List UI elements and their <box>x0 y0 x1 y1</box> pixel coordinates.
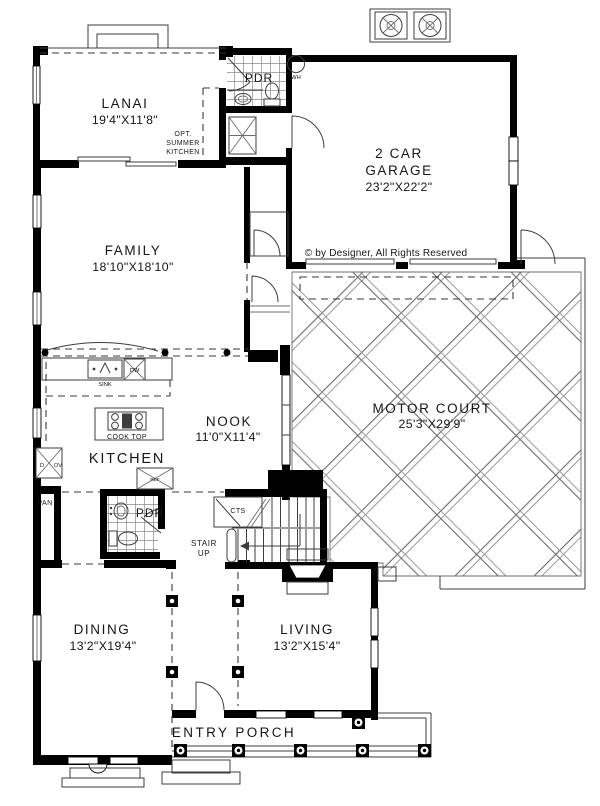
stair-break-line <box>247 499 270 527</box>
cooktop-icon <box>108 412 146 430</box>
family-window-2 <box>33 292 41 325</box>
labels: LANAI 19'4"X11'8" OPT. SUMMER KITCHEN PD… <box>37 71 491 740</box>
dining-dims: 13'2"X19'4" <box>69 639 136 653</box>
garage-label-1: 2 CAR <box>375 146 423 161</box>
refrigerator-label: REF <box>150 477 160 483</box>
hall-closet <box>250 212 288 256</box>
pdr-lower-label: PDR <box>136 506 164 520</box>
pantry-label: PAN <box>37 500 52 507</box>
ac-condenser-units <box>370 9 450 42</box>
porch-steps <box>162 760 240 784</box>
hall-door-1 <box>254 230 280 256</box>
cts-label: CTS <box>230 508 245 515</box>
floor-plan-svg: LANAI 19'4"X11'8" OPT. SUMMER KITCHEN PD… <box>0 0 600 806</box>
stair-label-2: UP <box>198 549 210 558</box>
fixtures <box>36 83 280 546</box>
stair-label-1: STAIR <box>191 539 217 548</box>
hall-door-2 <box>252 276 278 302</box>
ac-closet-door <box>292 116 324 148</box>
stair-newel <box>227 529 236 562</box>
opt-kitchen-line1: OPT. <box>174 131 191 138</box>
lanai-window <box>33 66 40 104</box>
family-window-1 <box>33 195 41 228</box>
dishwasher-label: DW <box>130 368 140 374</box>
stair-direction-arrow <box>248 514 300 546</box>
front-door <box>196 682 224 710</box>
lanai-dims: 19'4"X11'8" <box>92 113 158 127</box>
living-label: LIVING <box>280 622 334 637</box>
water-heater-label: WH <box>291 75 301 81</box>
lanai-label: LANAI <box>101 96 148 111</box>
nook-label: NOOK <box>206 414 252 429</box>
family-dims: 18'10"X18'10" <box>92 260 174 274</box>
ac-label: AC <box>232 158 243 165</box>
oven-label-d: D <box>40 463 44 469</box>
foyer-columns <box>166 595 244 678</box>
floor-plan: LANAI 19'4"X11'8" OPT. SUMMER KITCHEN PD… <box>0 0 600 806</box>
stairs <box>214 497 320 562</box>
nook-windows <box>282 375 290 465</box>
ac-unit-icon <box>229 117 256 154</box>
dining-window <box>33 615 41 661</box>
family-colonnade <box>41 343 248 357</box>
opt-kitchen-line2: SUMMER <box>166 140 200 147</box>
pdr-upper-label: PDR <box>245 71 273 85</box>
garage-exit-door <box>521 230 555 264</box>
motor-court-label: MOTOR COURT <box>372 401 491 416</box>
lanai-sliding-door <box>78 157 176 166</box>
family-label: FAMILY <box>105 243 162 258</box>
copyright-note: © by Designer, All Rights Reserved <box>305 248 468 259</box>
garage-window <box>509 137 518 185</box>
cooktop-label: COOK TOP <box>107 434 147 441</box>
kitchen-label: KITCHEN <box>89 451 165 467</box>
nook-dims: 11'0"X11'4" <box>195 430 260 444</box>
oven-label-ov: OV <box>54 463 63 469</box>
kitchen-window <box>33 408 41 438</box>
garage-label-2: GARAGE <box>365 163 432 178</box>
dining-label: DINING <box>74 622 131 637</box>
garage-dims: 23'2"X22'2" <box>365 180 432 194</box>
living-dims: 13'2"X15'4" <box>273 639 340 653</box>
sink-label: SINK <box>98 382 112 388</box>
summer-kitchen-chimney <box>88 25 168 48</box>
opt-kitchen-line3: KITCHEN <box>166 149 200 156</box>
motor-court-dims: 25'3"X29'9" <box>398 417 465 431</box>
entry-porch-label: ENTRY PORCH <box>172 725 296 740</box>
opt-kitchen-outline <box>203 88 219 160</box>
kitchen-sink-icon <box>88 360 122 378</box>
